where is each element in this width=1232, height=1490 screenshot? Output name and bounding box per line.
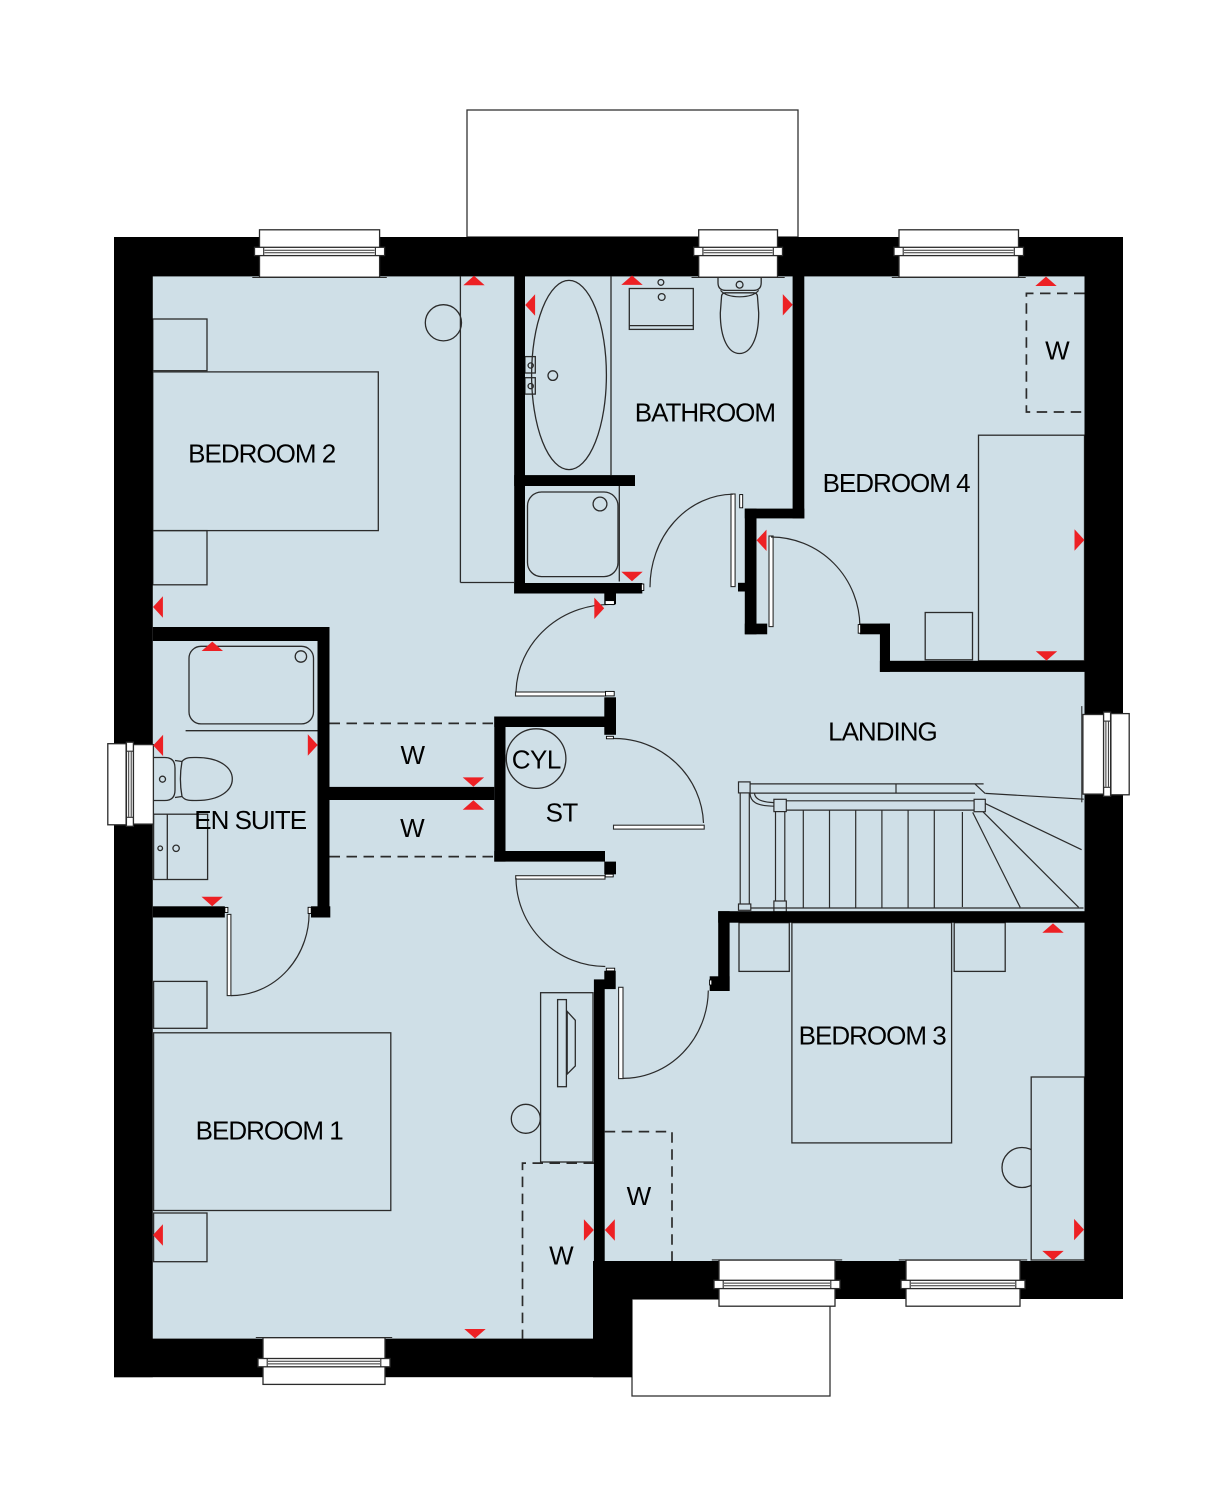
svg-text:BEDROOM 4: BEDROOM 4 xyxy=(823,468,971,498)
svg-text:BEDROOM 3: BEDROOM 3 xyxy=(799,1021,947,1051)
svg-text:ST: ST xyxy=(546,797,579,827)
svg-text:BEDROOM 1: BEDROOM 1 xyxy=(196,1116,344,1146)
svg-text:W: W xyxy=(400,813,425,843)
svg-text:W: W xyxy=(401,740,426,770)
svg-text:BEDROOM 2: BEDROOM 2 xyxy=(188,438,336,468)
svg-text:W: W xyxy=(549,1241,574,1271)
svg-text:EN SUITE: EN SUITE xyxy=(194,805,307,835)
svg-text:LANDING: LANDING xyxy=(828,717,937,747)
svg-text:CYL: CYL xyxy=(512,745,561,775)
svg-text:W: W xyxy=(1045,335,1070,365)
svg-text:BATHROOM: BATHROOM xyxy=(635,397,775,427)
svg-text:W: W xyxy=(627,1181,652,1211)
